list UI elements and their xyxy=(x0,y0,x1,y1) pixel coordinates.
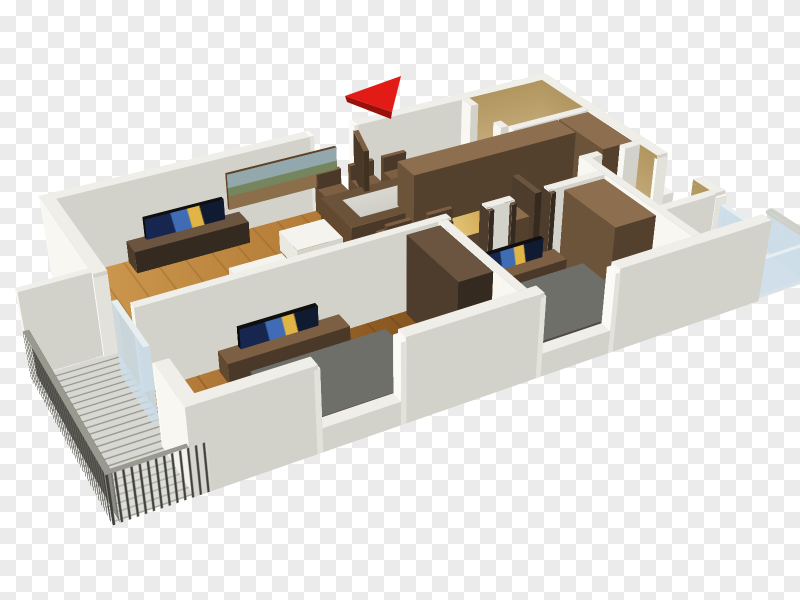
floor-plan-3d-stage xyxy=(52,145,759,497)
wall-south-b xyxy=(398,370,539,424)
floor-plan-figure xyxy=(0,0,800,600)
railing-south xyxy=(110,487,211,526)
wall-south-c xyxy=(603,295,758,352)
direction-arrow xyxy=(330,60,420,130)
window-sill-2 xyxy=(531,345,612,378)
window-sill-1 xyxy=(315,415,406,453)
png-transparent-canvas: { "image": { "type": "3d-floor-plan-rend… xyxy=(0,0,800,600)
window-post-2-face-south xyxy=(401,341,407,426)
